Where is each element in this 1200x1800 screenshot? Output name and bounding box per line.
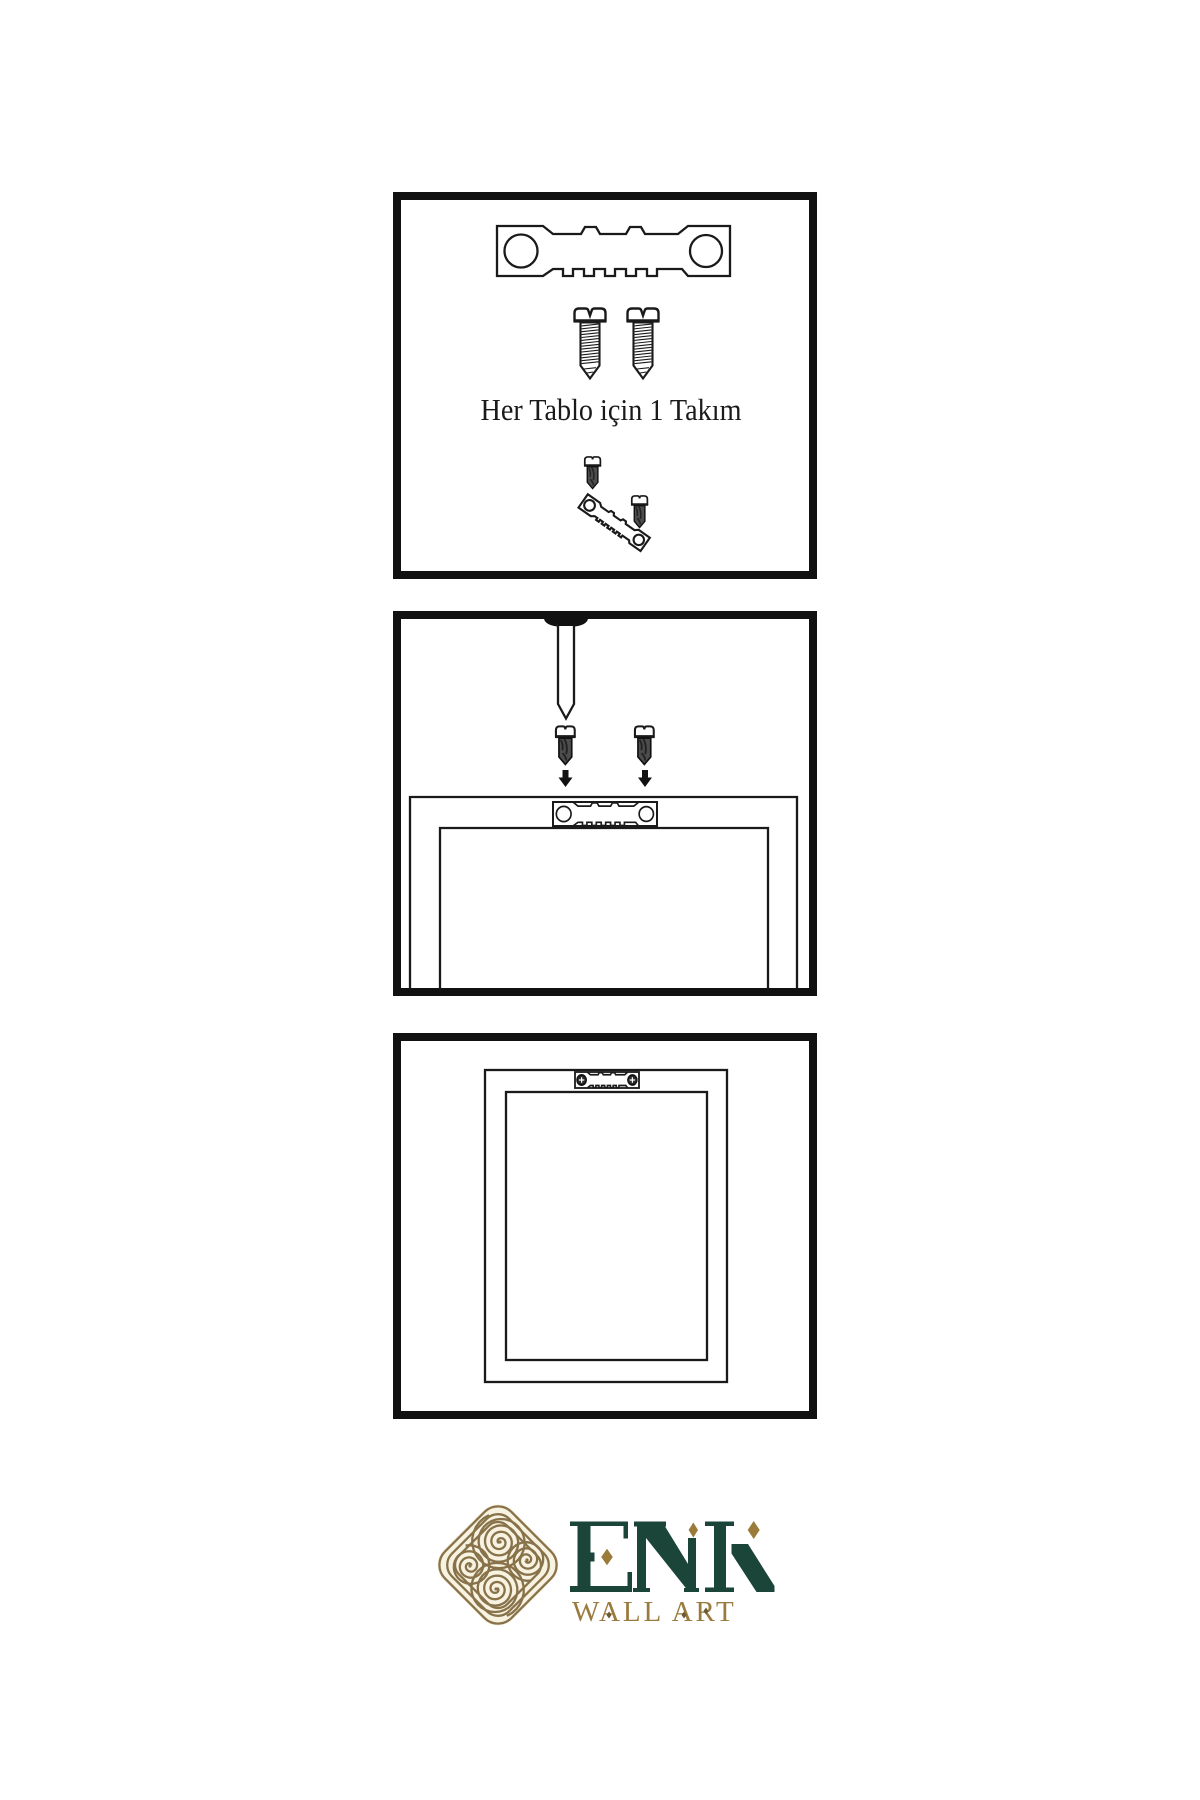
svg-text:WALL ART: WALL ART [572, 1596, 737, 1628]
svg-text:Her Tablo için 1 Takım: Her Tablo için 1 Takım [481, 392, 742, 427]
